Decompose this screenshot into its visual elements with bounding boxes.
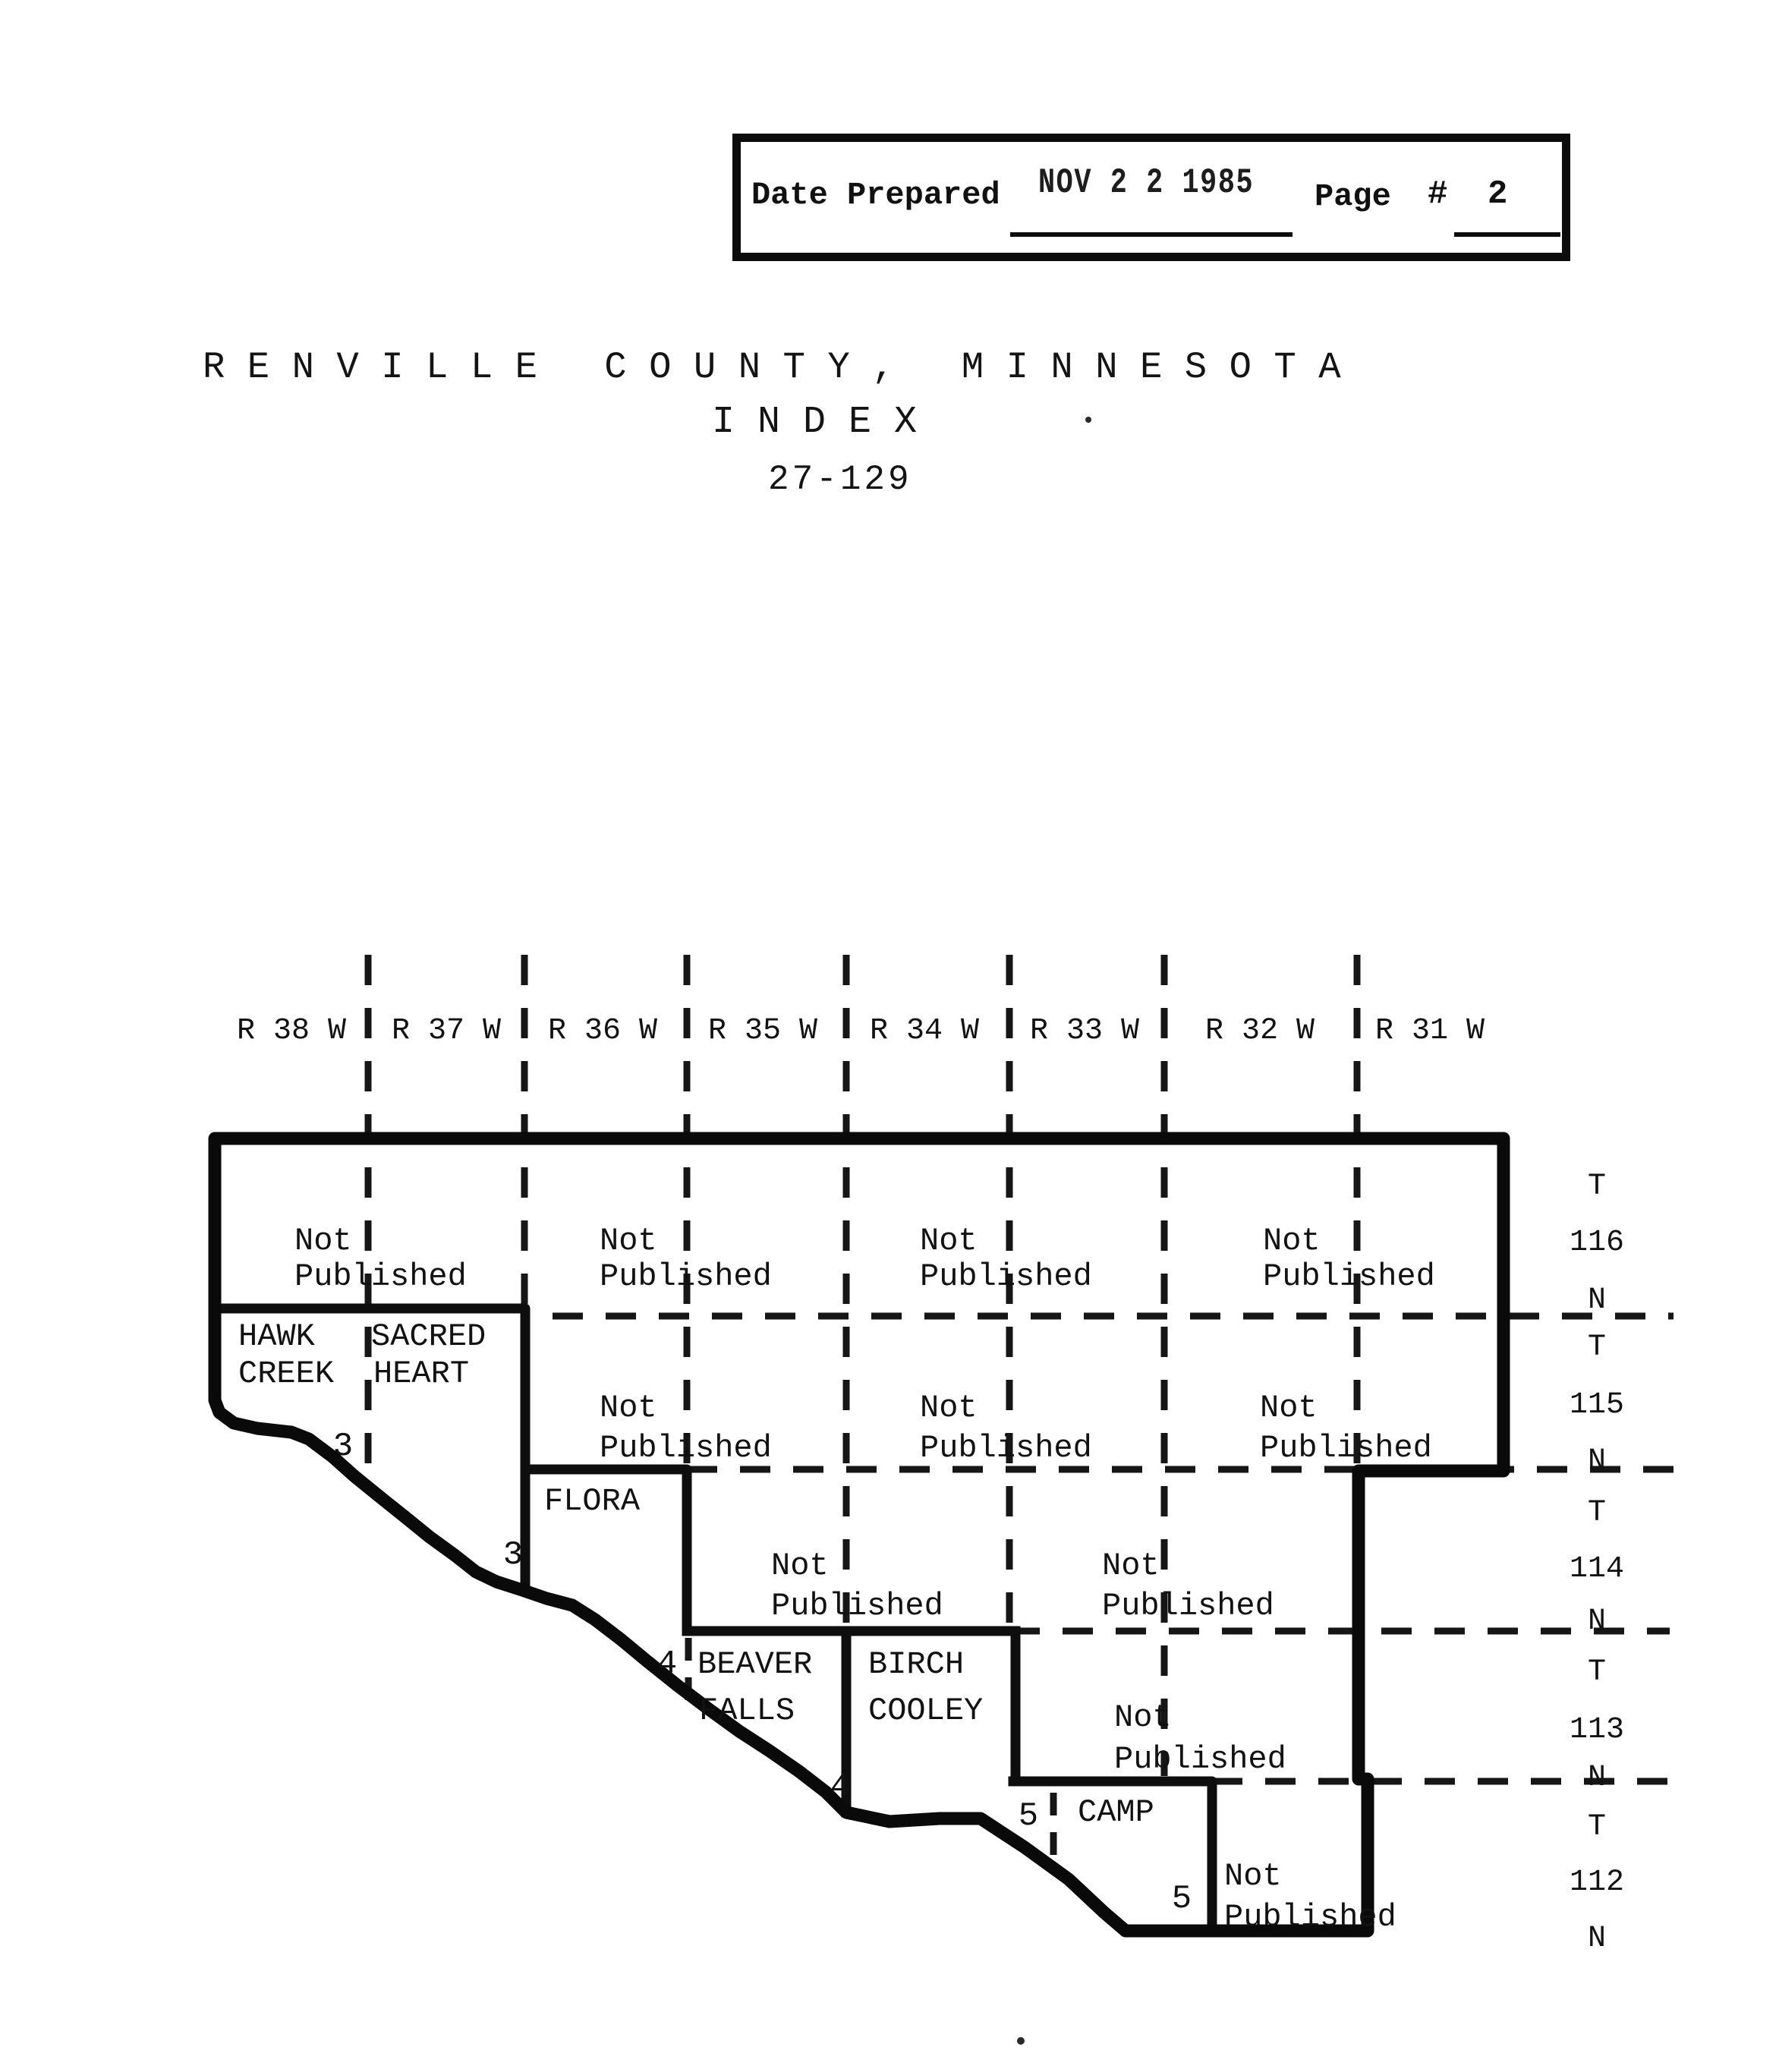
township-n: N (1588, 1761, 1606, 1795)
scan-artifact-dot (1017, 2037, 1025, 2045)
township-name: HEART (373, 1356, 469, 1392)
township-n: N (1588, 1444, 1606, 1478)
not-published-line1: Not (600, 1223, 657, 1259)
scan-artifact-mark (1085, 417, 1091, 423)
page-ref-camp-south: 5 (1172, 1880, 1192, 1918)
township-name: BIRCH (868, 1646, 964, 1683)
not-published-line1: Not (294, 1223, 352, 1259)
township-label-t115n: T 115 N (1570, 1330, 1624, 1478)
range-label-r37w: R 37 W (392, 1014, 501, 1048)
township-label-t113n: T 113 N (1570, 1655, 1624, 1795)
township-t: T (1588, 1170, 1606, 1204)
township-name: HAWK (238, 1318, 316, 1355)
township-name: CREEK (238, 1356, 335, 1392)
township-hawk-creek: HAWK CREEK (238, 1318, 335, 1392)
township-name: FALLS (699, 1693, 795, 1729)
township-number: 114 (1570, 1552, 1624, 1586)
range-label-r35w: R 35 W (708, 1014, 817, 1048)
not-published-t116-r32-r31: Not Published (1263, 1223, 1435, 1295)
not-published-line1: Not (1263, 1223, 1321, 1259)
township-t: T (1588, 1330, 1606, 1365)
township-t: T (1588, 1655, 1606, 1689)
township-label-t114n: T 114 N (1570, 1496, 1624, 1639)
township-name: BEAVER (697, 1646, 812, 1683)
not-published-line2: Published (771, 1588, 943, 1624)
township-number: 113 (1570, 1713, 1624, 1747)
township-n: N (1588, 1922, 1606, 1956)
range-label-r34w: R 34 W (870, 1014, 979, 1048)
township-n: N (1588, 1283, 1606, 1318)
not-published-line2: Published (920, 1430, 1092, 1466)
page-ref-beaver-falls: 4 (657, 1645, 677, 1683)
not-published-line2: Published (1263, 1258, 1435, 1295)
range-label-r33w: R 33 W (1030, 1014, 1139, 1048)
not-published-t115-r34-r33: Not Published (920, 1390, 1092, 1466)
township-n: N (1588, 1604, 1606, 1639)
not-published-line1: Not (920, 1223, 978, 1259)
not-published-line1: Not (1114, 1699, 1172, 1736)
page-ref-camp: 5 (1019, 1797, 1038, 1835)
township-name: COOLEY (868, 1693, 983, 1729)
township-name: SACRED (371, 1318, 486, 1355)
township-birch-cooley: BIRCH COOLEY (868, 1646, 983, 1729)
not-published-line2: Published (600, 1258, 772, 1295)
range-label-r38w: R 38 W (237, 1014, 346, 1048)
township-t: T (1588, 1810, 1606, 1844)
not-published-line1: Not (1224, 1858, 1282, 1894)
township-beaver-falls: BEAVER FALLS (697, 1646, 812, 1729)
range-label-r36w: R 36 W (548, 1014, 657, 1048)
not-published-line1: Not (1102, 1548, 1160, 1584)
township-flora: FLORA (544, 1483, 641, 1519)
not-published-line2: Published (920, 1258, 1092, 1295)
township-number: 116 (1570, 1226, 1624, 1260)
not-published-line2: Published (1114, 1741, 1286, 1778)
not-published-line2: Published (294, 1258, 467, 1295)
not-published-line1: Not (920, 1390, 978, 1426)
township-number: 115 (1570, 1388, 1624, 1422)
not-published-line1: Not (600, 1390, 657, 1426)
not-published-line1: Not (771, 1548, 829, 1584)
not-published-t113-r33-r32: Not Published (1114, 1699, 1286, 1778)
township-sacred-heart: SACRED HEART (371, 1318, 486, 1392)
not-published-line2: Published (600, 1430, 772, 1466)
scanned-index-page: Date Prepared NOV 2 2 1985 Page # 2 R E … (0, 0, 1779, 2072)
county-index-map: R 38 W R 37 W R 36 W R 35 W R 34 W R 33 … (0, 0, 1779, 2072)
not-published-t116-r34-r33: Not Published (920, 1223, 1092, 1295)
page-ref-hawk-creek: 3 (333, 1428, 353, 1466)
township-label-t116n: T 116 N (1570, 1170, 1624, 1318)
page-ref-sacred-heart: 3 (503, 1536, 523, 1574)
page-ref-birch-cooley: 4 (830, 1768, 850, 1806)
township-t: T (1588, 1496, 1606, 1530)
not-published-line2: Published (1224, 1899, 1396, 1935)
not-published-line2: Published (1102, 1588, 1274, 1624)
not-published-line1: Not (1260, 1390, 1318, 1426)
range-label-r31w: R 31 W (1375, 1014, 1485, 1048)
township-label-t112n: T 112 N (1570, 1810, 1624, 1956)
not-published-t116-r38-r37: Not Published (294, 1223, 467, 1295)
township-camp: CAMP (1078, 1794, 1154, 1831)
not-published-line2: Published (1260, 1430, 1432, 1466)
not-published-t115-r32-r31: Not Published (1260, 1390, 1432, 1466)
range-label-r32w: R 32 W (1205, 1014, 1315, 1048)
not-published-t114-r33-r32: Not Published (1102, 1548, 1274, 1624)
not-published-t114-r35-r34: Not Published (771, 1548, 943, 1624)
township-number: 112 (1570, 1866, 1624, 1900)
